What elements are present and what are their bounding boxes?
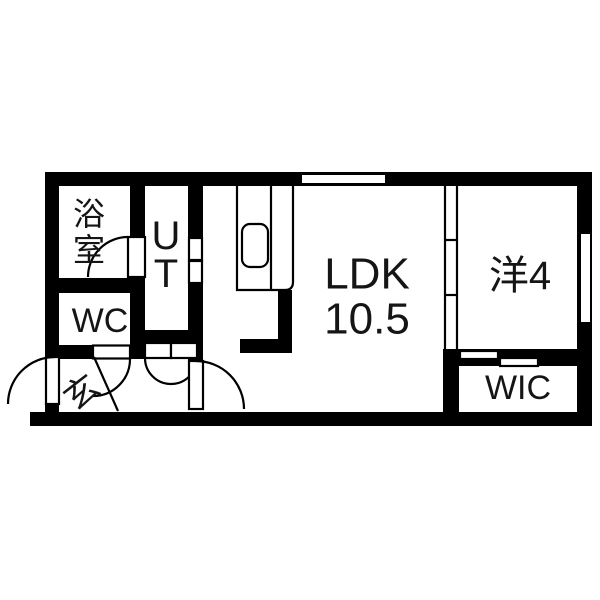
wall-bottom [30,412,592,426]
ldk-area-label: 10.5 [324,295,410,344]
entrance-door-leaf [46,357,59,404]
kitchen-partition-vertical [278,290,292,345]
double-door-panel-right [171,343,197,358]
wc-door-leaf [93,346,130,359]
utility-folding-panel-2 [189,261,202,283]
wall-left-lower [45,404,59,426]
ldk-label: LDK [324,250,410,299]
wall-bath-wc [59,278,145,293]
wall-hall-ldk-upper [188,186,203,238]
bathroom-label-char1: 浴 [73,196,105,232]
wall-bath-utility-upper [130,186,145,237]
utility-label-char2: T [154,252,178,296]
wall-left-upper [45,172,59,357]
ldk-door-leaf [189,361,203,409]
kitchen-sink [242,224,268,267]
wic-slider-panel-2 [500,358,538,366]
wall-ldk-wic [443,349,459,412]
wc-label: WC [72,302,129,340]
wic-label: WIC [485,369,551,407]
western-room-label: 洋4 [489,254,551,298]
top-window [302,175,385,183]
sliding-partition [445,186,457,349]
kitchen-partition-horizontal [240,339,292,353]
utility-folding-panel-1 [189,238,202,260]
bathroom-label-char2: 室 [73,232,105,268]
floorplan-drawing: 浴 室 U T WC 玄 LDK 10.5 洋4 WIC [0,0,600,600]
double-door-panel-left [145,343,171,358]
bath-door-leaf [128,237,145,277]
right-window [581,234,590,322]
wall-wc-entrance [59,345,94,359]
floorplan-page: 浴 室 U T WC 玄 LDK 10.5 洋4 WIC [0,0,600,600]
wic-slider-panel-1 [460,351,498,359]
